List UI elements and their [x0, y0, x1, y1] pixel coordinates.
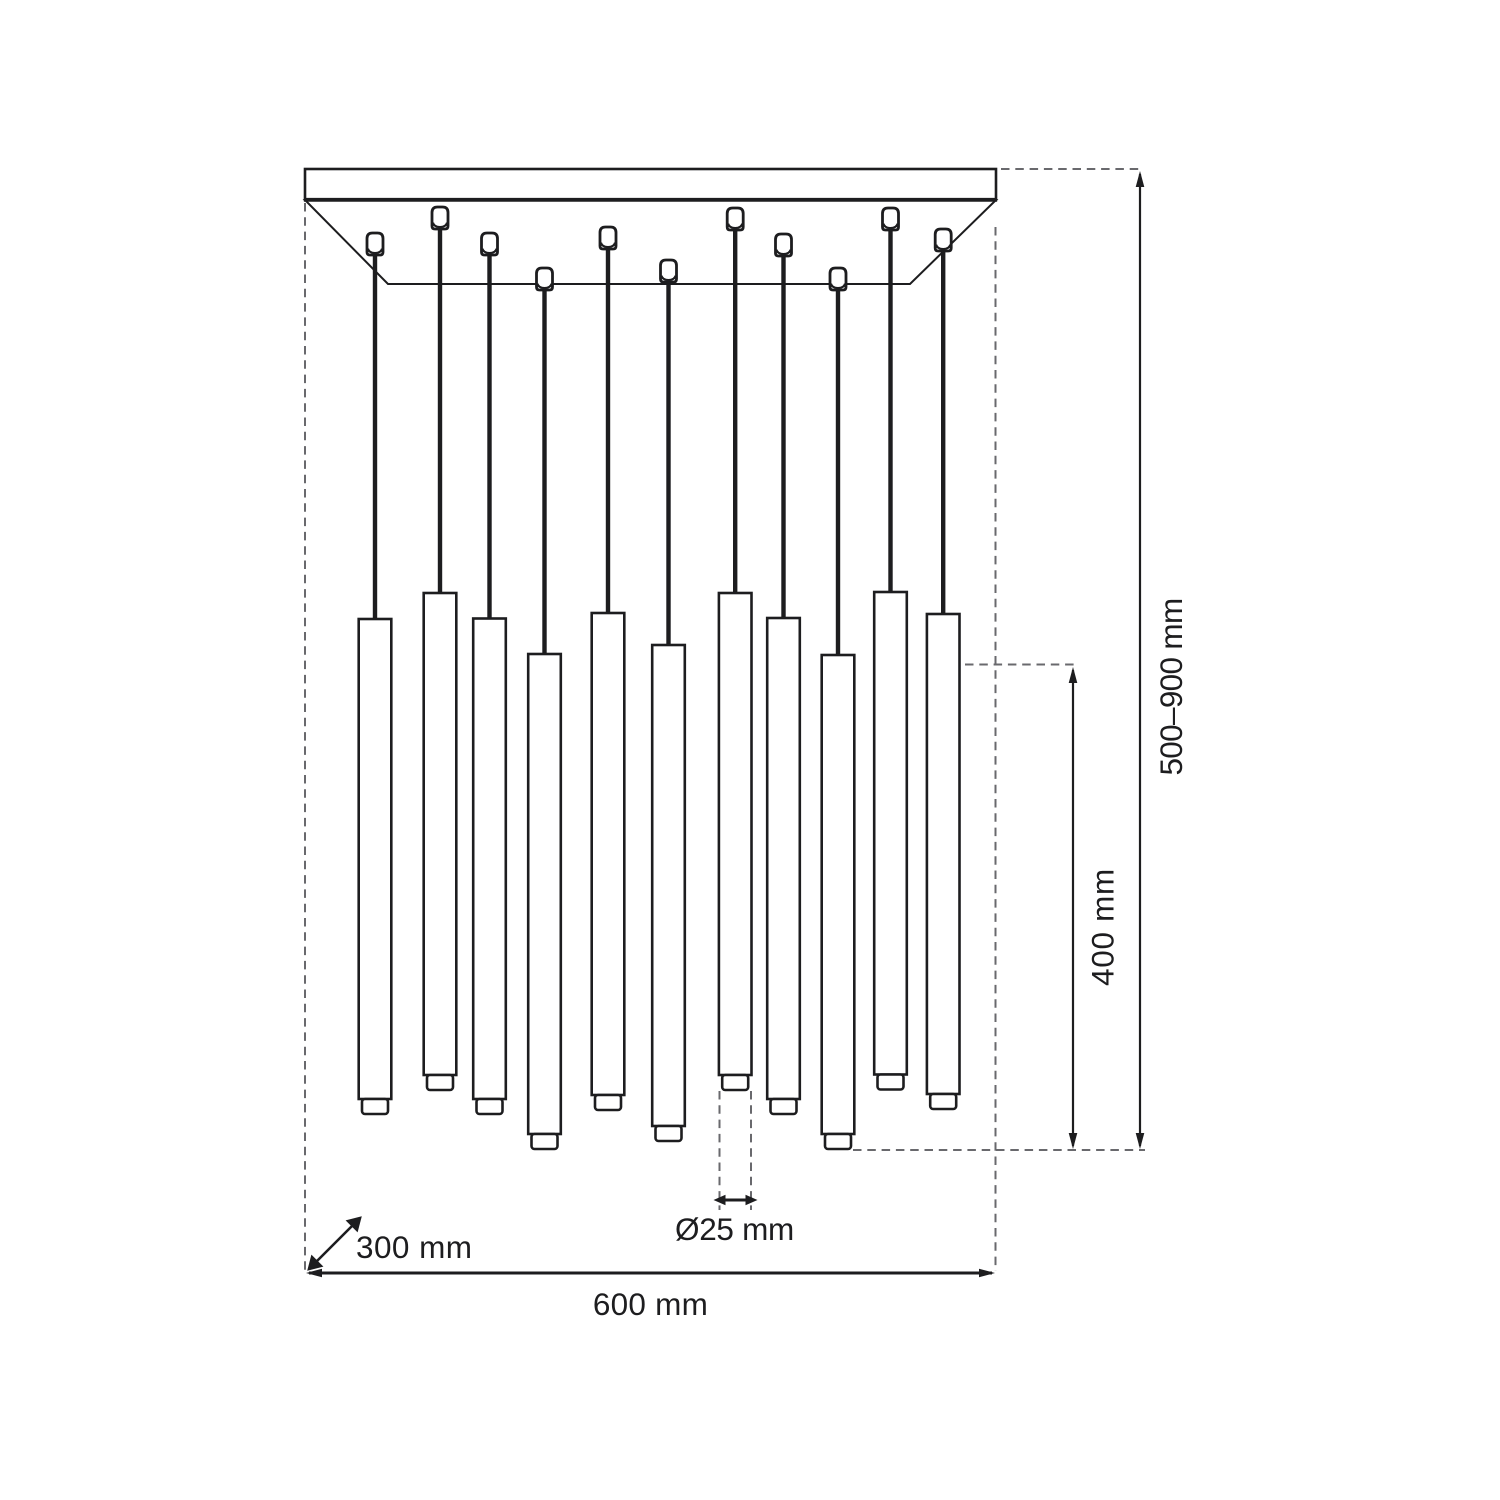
- svg-text:Ø25 mm: Ø25 mm: [675, 1211, 794, 1247]
- svg-text:300 mm: 300 mm: [356, 1229, 472, 1265]
- svg-text:500–900 mm: 500–900 mm: [1153, 598, 1189, 775]
- svg-text:600 mm: 600 mm: [593, 1286, 708, 1322]
- svg-text:400 mm: 400 mm: [1085, 868, 1121, 986]
